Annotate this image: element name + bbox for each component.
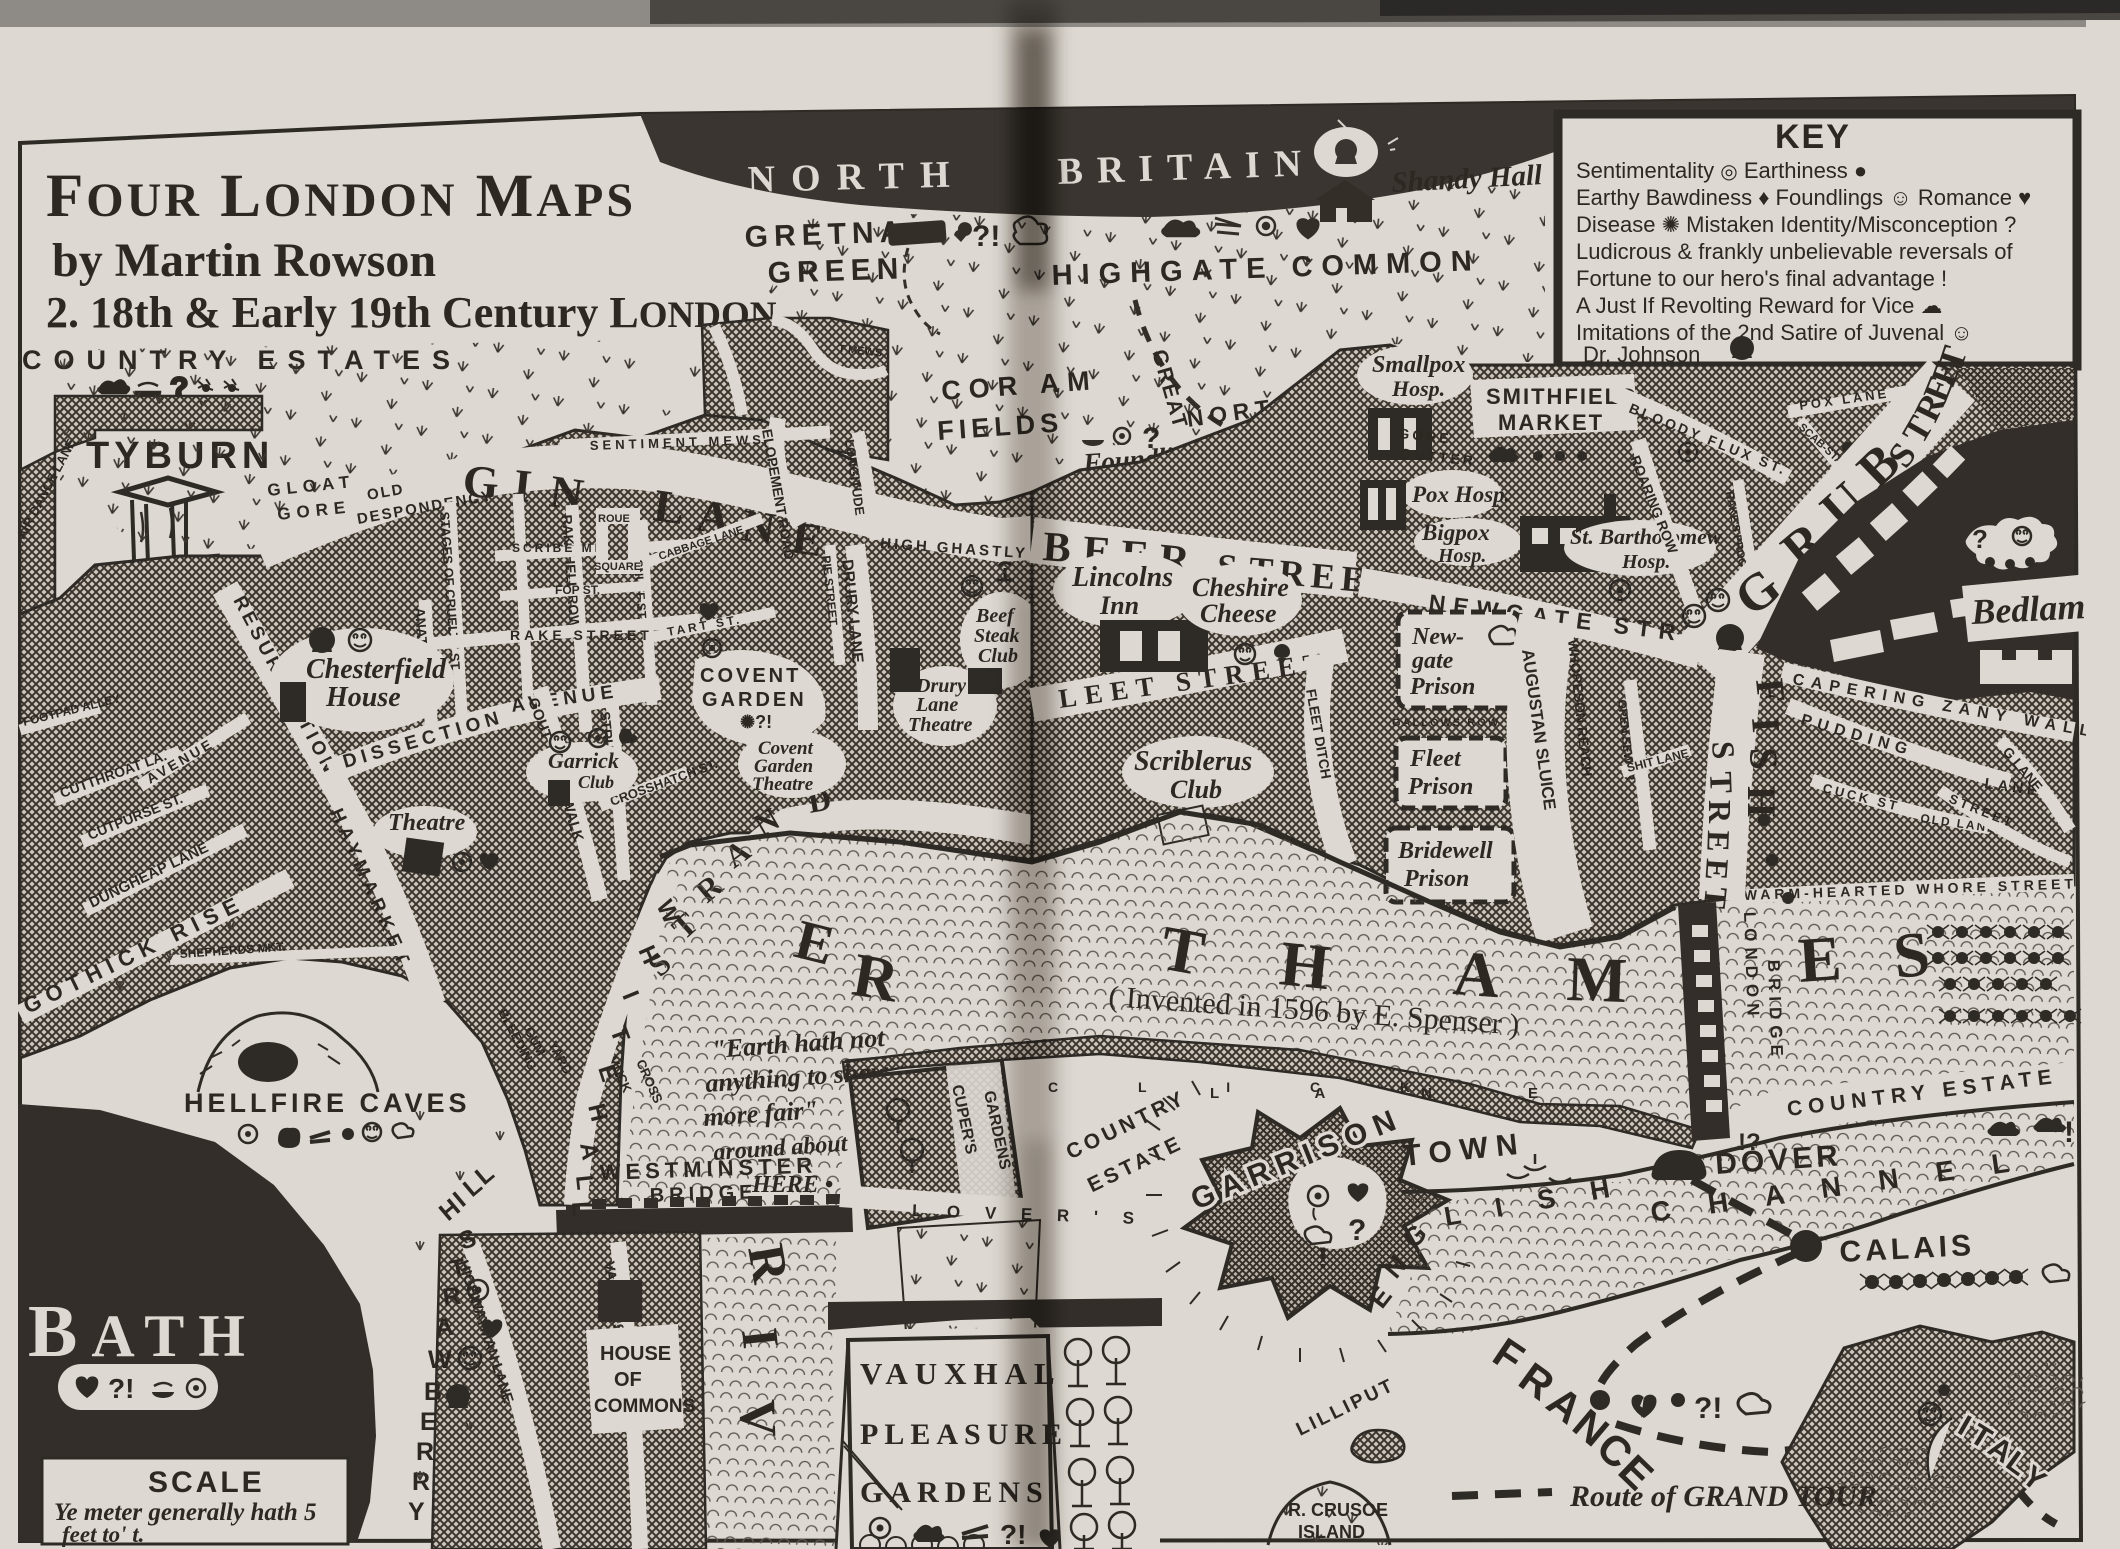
svg-text:I: I: [1743, 715, 1789, 734]
svg-text:✺?!: ✺?!: [740, 712, 772, 732]
svg-text:Smallpox: Smallpox: [1372, 352, 1465, 378]
svg-text:!: !: [1318, 1242, 1328, 1275]
svg-text:Ludicrous & frankly unbelievab: Ludicrous & frankly unbelievable reversa…: [1576, 239, 2013, 264]
svg-text:Fortune to our hero's final ad: Fortune to our hero's final advantage !: [1576, 266, 1947, 291]
svg-text:B: B: [424, 1378, 442, 1406]
svg-text:A: A: [434, 1313, 454, 1342]
svg-text:Hosp.: Hosp.: [1391, 376, 1445, 401]
svg-text:Club: Club: [578, 772, 614, 792]
svg-text:V: V: [728, 1398, 786, 1438]
svg-text:gate: gate: [1411, 648, 1454, 674]
svg-text:RAKE STREET: RAKE STREET: [510, 627, 653, 643]
svg-text:GRETNA: GRETNA: [744, 215, 908, 254]
svg-text:OF: OF: [614, 1369, 642, 1391]
svg-text:F: F: [1747, 676, 1794, 705]
svg-text:E: E: [1309, 555, 1336, 597]
svg-text:BRIDGE: BRIDGE: [1764, 959, 1787, 1062]
svg-text:Bridewell: Bridewell: [1397, 838, 1493, 864]
svg-text:A Just If Revolting Reward for: A Just If Revolting Reward for Vice ☁: [1576, 293, 1942, 318]
svg-text:Chesterfield: Chesterfield: [306, 654, 447, 685]
svg-text:?: ?: [1348, 1214, 1366, 1247]
svg-text:Scriblerus: Scriblerus: [1134, 746, 1252, 777]
svg-text:?: ?: [1972, 524, 1988, 554]
svg-text:ROUE: ROUE: [598, 513, 630, 525]
svg-text:E: E: [420, 1408, 437, 1436]
svg-text:BRITAIN: BRITAIN: [1057, 142, 1316, 193]
svg-text:T: T: [1703, 771, 1740, 794]
svg-text:L A N E: L A N E: [1210, 1085, 1584, 1102]
svg-text:Prison: Prison: [1409, 674, 1475, 700]
svg-text:Hosp.: Hosp.: [1621, 551, 1670, 573]
svg-text:?!: ?!: [108, 1373, 134, 1404]
svg-text:Theatre: Theatre: [388, 810, 466, 836]
svg-text:2. 18th & Early 19th Century L: 2. 18th & Early 19th Century LONDON: [46, 288, 777, 337]
svg-text:Prison: Prison: [1403, 866, 1469, 892]
svg-text:S: S: [1890, 918, 1933, 992]
svg-text:HOUSE: HOUSE: [600, 1343, 671, 1365]
svg-text:LONDON: LONDON: [1740, 911, 1763, 1021]
svg-text:SCALE: SCALE: [148, 1466, 265, 1499]
svg-text:Y: Y: [408, 1498, 425, 1526]
svg-text:Fleet: Fleet: [1409, 746, 1462, 772]
svg-text:HELLFIRE CAVES: HELLFIRE CAVES: [184, 1088, 471, 1118]
svg-text:R: R: [1702, 800, 1738, 824]
svg-text:Theatre: Theatre: [908, 714, 973, 736]
svg-text:A: A: [1451, 937, 1502, 1011]
svg-text:Pox Hosp.: Pox Hosp.: [1411, 482, 1510, 507]
svg-text:GARDEN: GARDEN: [702, 689, 807, 711]
svg-text:Lincolns: Lincolns: [1071, 562, 1173, 593]
svg-text:feet to' t.: feet to' t.: [62, 1522, 144, 1547]
svg-text:Cheese: Cheese: [1200, 599, 1277, 628]
svg-text:Sentimentality ◎ Earthiness ●: Sentimentality ◎ Earthiness ●: [1576, 158, 1867, 183]
svg-text:R. CRUSOE: R. CRUSOE: [1288, 1500, 1388, 1520]
svg-text:COMMONS: COMMONS: [594, 1396, 695, 1417]
svg-text:Disease ✺ Mistaken Identity/Mi: Disease ✺ Mistaken Identity/Misconceptio…: [1576, 212, 2016, 237]
svg-text:Bedlam: Bedlam: [1969, 586, 2086, 632]
svg-text:by Martin Rowson: by Martin Rowson: [52, 234, 436, 287]
svg-text:L: L: [570, 1174, 598, 1191]
svg-text:MARKET: MARKET: [1498, 410, 1604, 435]
svg-text:Lane: Lane: [915, 694, 958, 716]
svg-text:H: H: [1739, 786, 1784, 817]
svg-text:New-: New-: [1411, 624, 1464, 650]
svg-text:W: W: [428, 1346, 452, 1374]
svg-text:House: House: [325, 682, 401, 713]
svg-text:Club: Club: [1170, 775, 1222, 804]
svg-text:G: G: [461, 455, 500, 508]
svg-text:?!: ?!: [1694, 1392, 1722, 1425]
svg-text:GREEN: GREEN: [767, 252, 905, 290]
svg-text:S: S: [1741, 747, 1787, 771]
svg-text:?!: ?!: [972, 220, 1000, 253]
svg-text:Dr. Johnson: Dr. Johnson: [1583, 342, 1700, 367]
svg-text:Bigpox: Bigpox: [1421, 520, 1490, 545]
svg-text:R: R: [416, 1438, 434, 1466]
svg-text:M: M: [1566, 943, 1629, 1016]
svg-text:R: R: [412, 1468, 430, 1496]
svg-text:E: E: [1796, 922, 1844, 996]
svg-text:Earthy Bawdiness ♦ Foundlings: Earthy Bawdiness ♦ Foundlings ☺ Romance …: [1576, 185, 2031, 210]
svg-text:R: R: [441, 1282, 463, 1312]
svg-text:Theatre: Theatre: [752, 774, 814, 795]
svg-text:S: S: [1705, 740, 1742, 760]
svg-text:GALLOWS ROW: GALLOWS ROW: [1392, 717, 1500, 729]
svg-text:SQUARE: SQUARE: [594, 561, 641, 573]
svg-text:E: E: [1699, 858, 1736, 882]
svg-text:COVENT: COVENT: [700, 665, 801, 687]
svg-text:E: E: [1700, 830, 1737, 853]
svg-text:St. Bartholomew: St. Bartholomew: [1570, 524, 1722, 549]
svg-text:Cheshire: Cheshire: [1192, 573, 1289, 602]
svg-text:Route of GRAND TOUR: Route of GRAND TOUR: [1569, 1480, 1877, 1513]
svg-text:Inn: Inn: [1099, 591, 1139, 620]
svg-text:L: L: [566, 1201, 594, 1218]
svg-text:FOP ST.: FOP ST.: [555, 583, 600, 597]
svg-text:Prison: Prison: [1407, 774, 1473, 800]
svg-text:NORTH: NORTH: [747, 153, 966, 201]
svg-text:FOUR LONDON MAPS: FOUR LONDON MAPS: [46, 163, 636, 230]
svg-text:KEY: KEY: [1775, 118, 1851, 156]
svg-text:ISLAND: ISLAND: [1298, 1522, 1365, 1542]
svg-text:!: !: [2064, 1116, 2074, 1149]
svg-text:BATH: BATH: [28, 1291, 259, 1373]
svg-text:Hosp.: Hosp.: [1437, 545, 1486, 567]
